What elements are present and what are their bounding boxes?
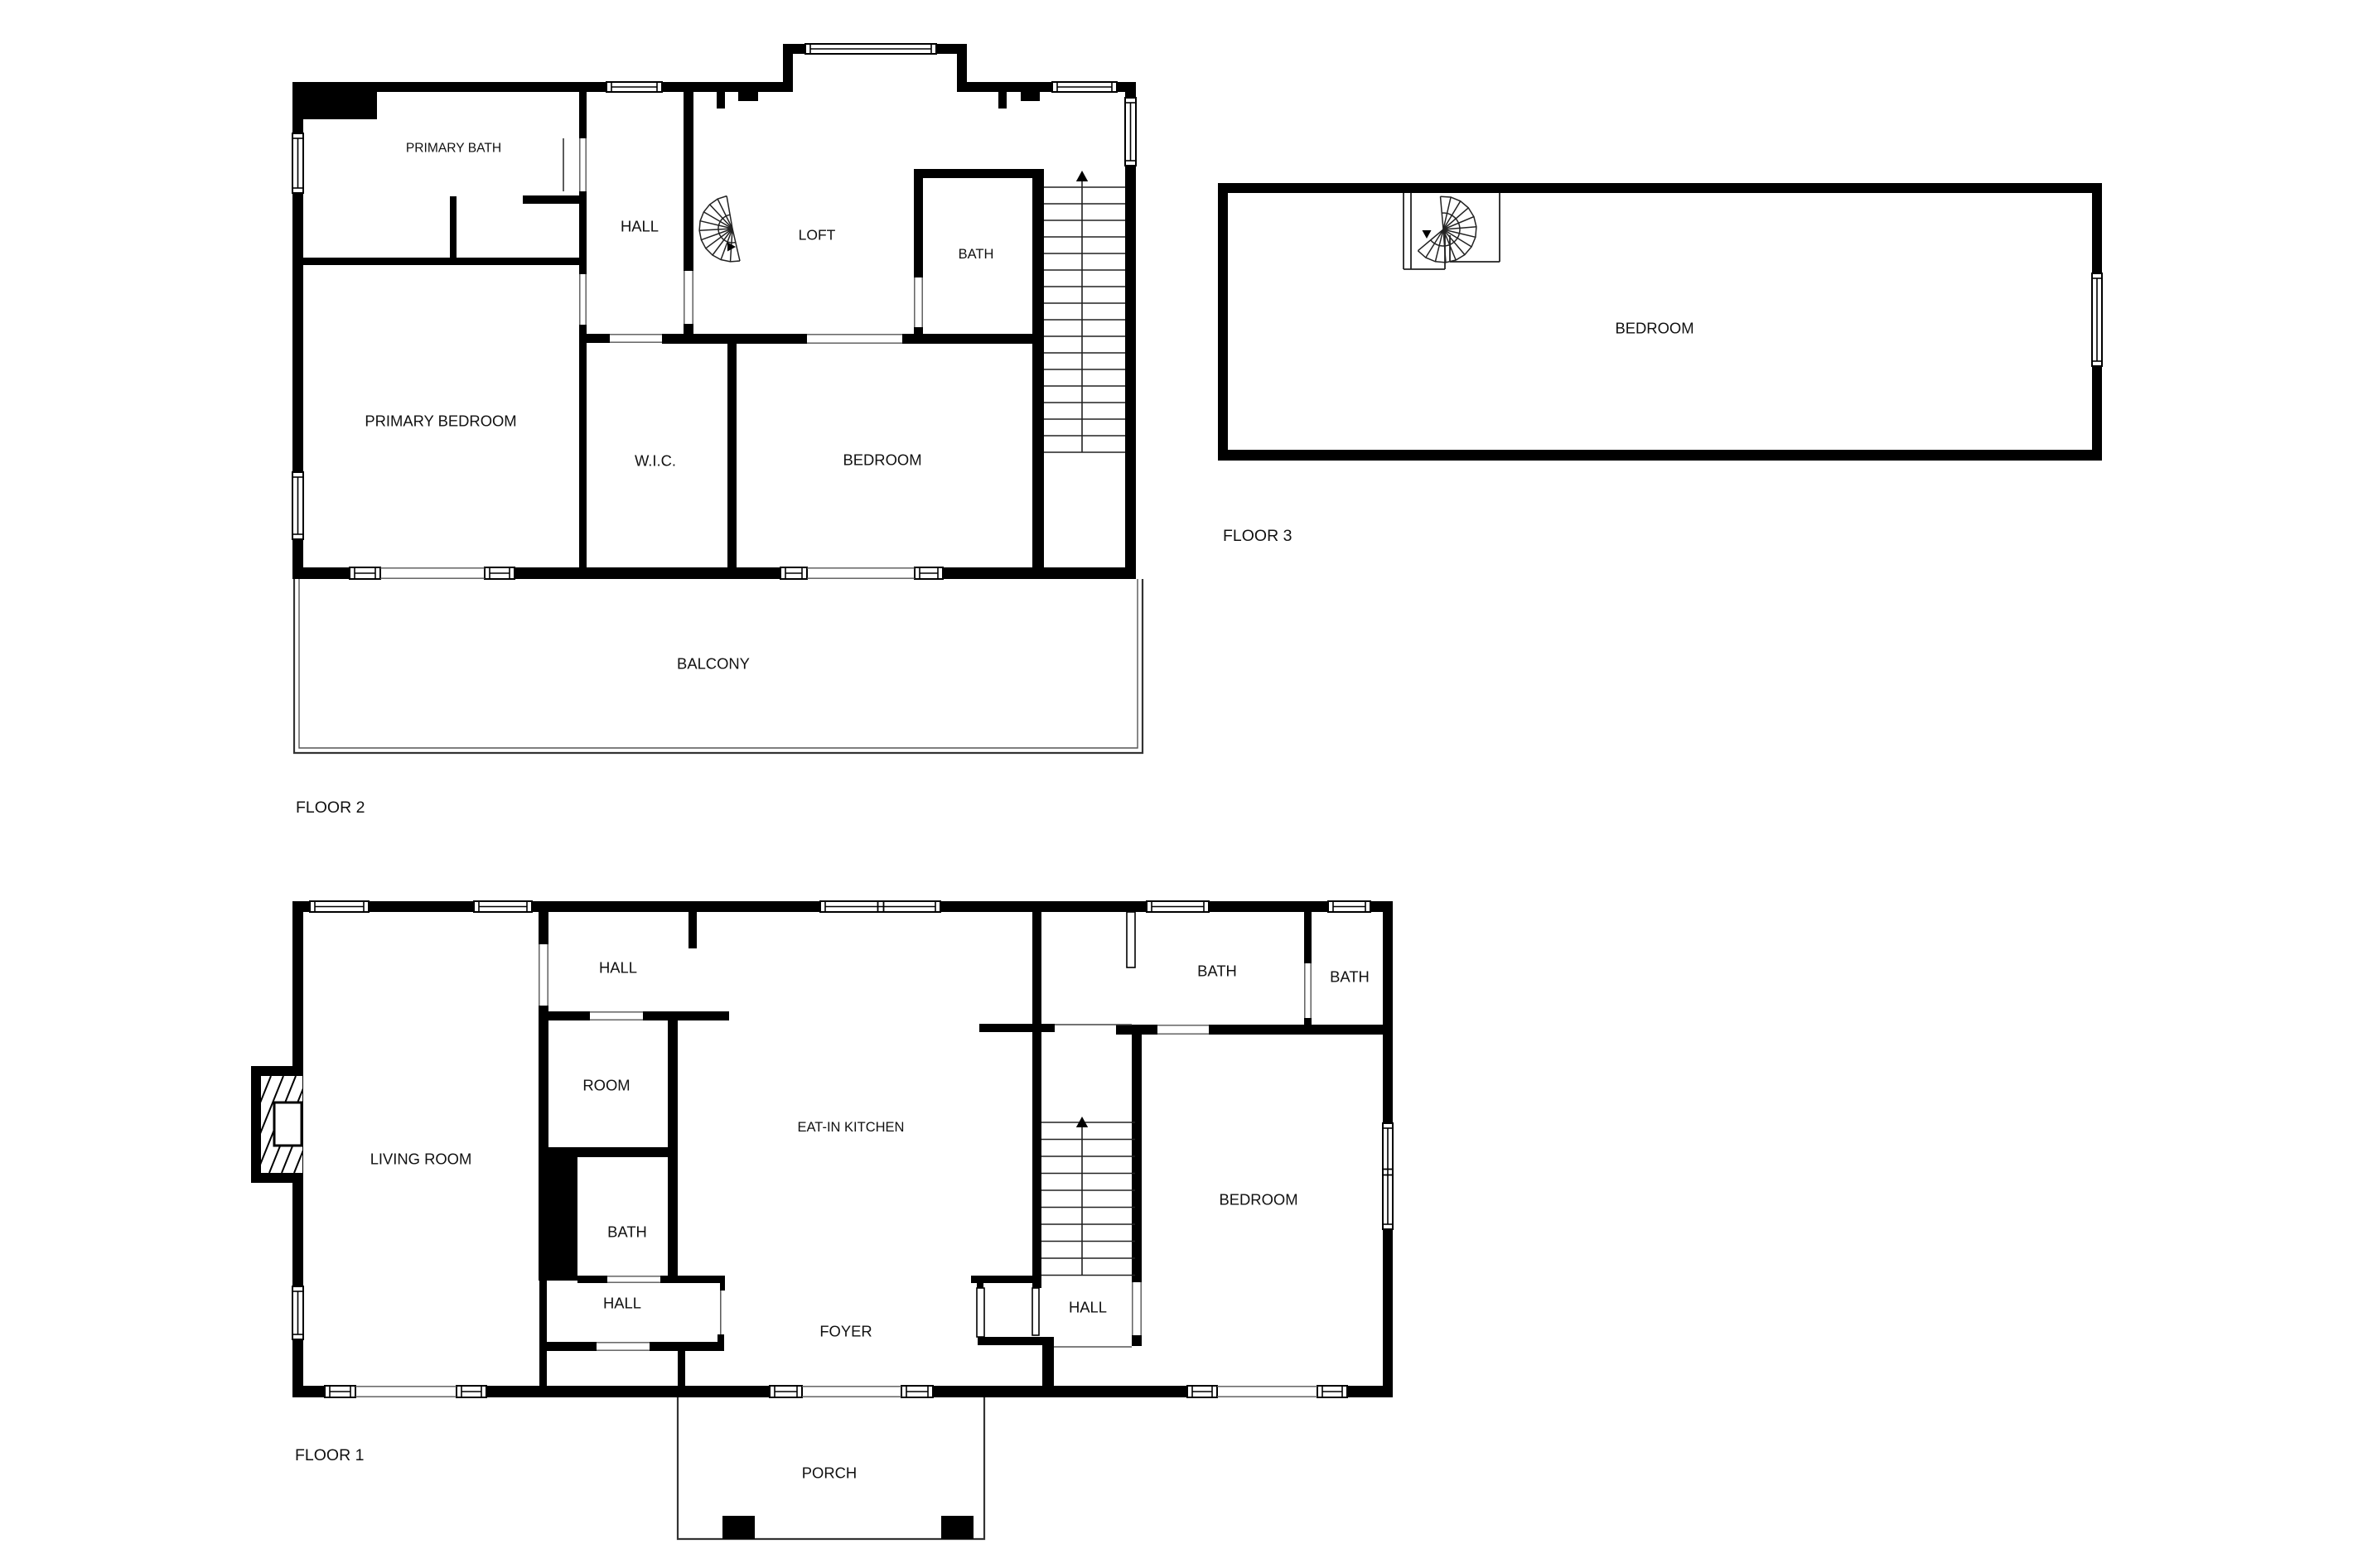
svg-text:PRIMARY BATH: PRIMARY BATH bbox=[406, 141, 501, 155]
svg-text:BATH: BATH bbox=[607, 1223, 647, 1241]
svg-text:BEDROOM: BEDROOM bbox=[1219, 1191, 1297, 1209]
svg-text:HALL: HALL bbox=[603, 1295, 641, 1312]
svg-text:BATH: BATH bbox=[1330, 968, 1370, 986]
svg-text:BATH: BATH bbox=[1197, 963, 1237, 980]
svg-text:HALL: HALL bbox=[1069, 1299, 1107, 1316]
svg-text:FLOOR 2: FLOOR 2 bbox=[296, 798, 365, 817]
svg-text:LOFT: LOFT bbox=[799, 226, 836, 243]
svg-text:HALL: HALL bbox=[621, 218, 659, 235]
svg-text:BEDROOM: BEDROOM bbox=[843, 451, 921, 469]
svg-text:EAT-IN KITCHEN: EAT-IN KITCHEN bbox=[798, 1120, 905, 1135]
svg-text:ROOM: ROOM bbox=[582, 1077, 630, 1094]
svg-text:FLOOR 1: FLOOR 1 bbox=[295, 1446, 364, 1464]
svg-text:W.I.C.: W.I.C. bbox=[635, 452, 676, 470]
svg-text:FOYER: FOYER bbox=[819, 1323, 872, 1340]
svg-text:BEDROOM: BEDROOM bbox=[1615, 320, 1693, 337]
svg-text:PRIMARY BEDROOM: PRIMARY BEDROOM bbox=[365, 413, 516, 430]
svg-text:LIVING ROOM: LIVING ROOM bbox=[370, 1151, 472, 1168]
svg-text:BATH: BATH bbox=[959, 247, 994, 262]
svg-text:HALL: HALL bbox=[599, 959, 637, 977]
svg-text:PORCH: PORCH bbox=[802, 1464, 857, 1482]
svg-text:BALCONY: BALCONY bbox=[677, 655, 750, 673]
svg-text:FLOOR 3: FLOOR 3 bbox=[1223, 527, 1292, 545]
